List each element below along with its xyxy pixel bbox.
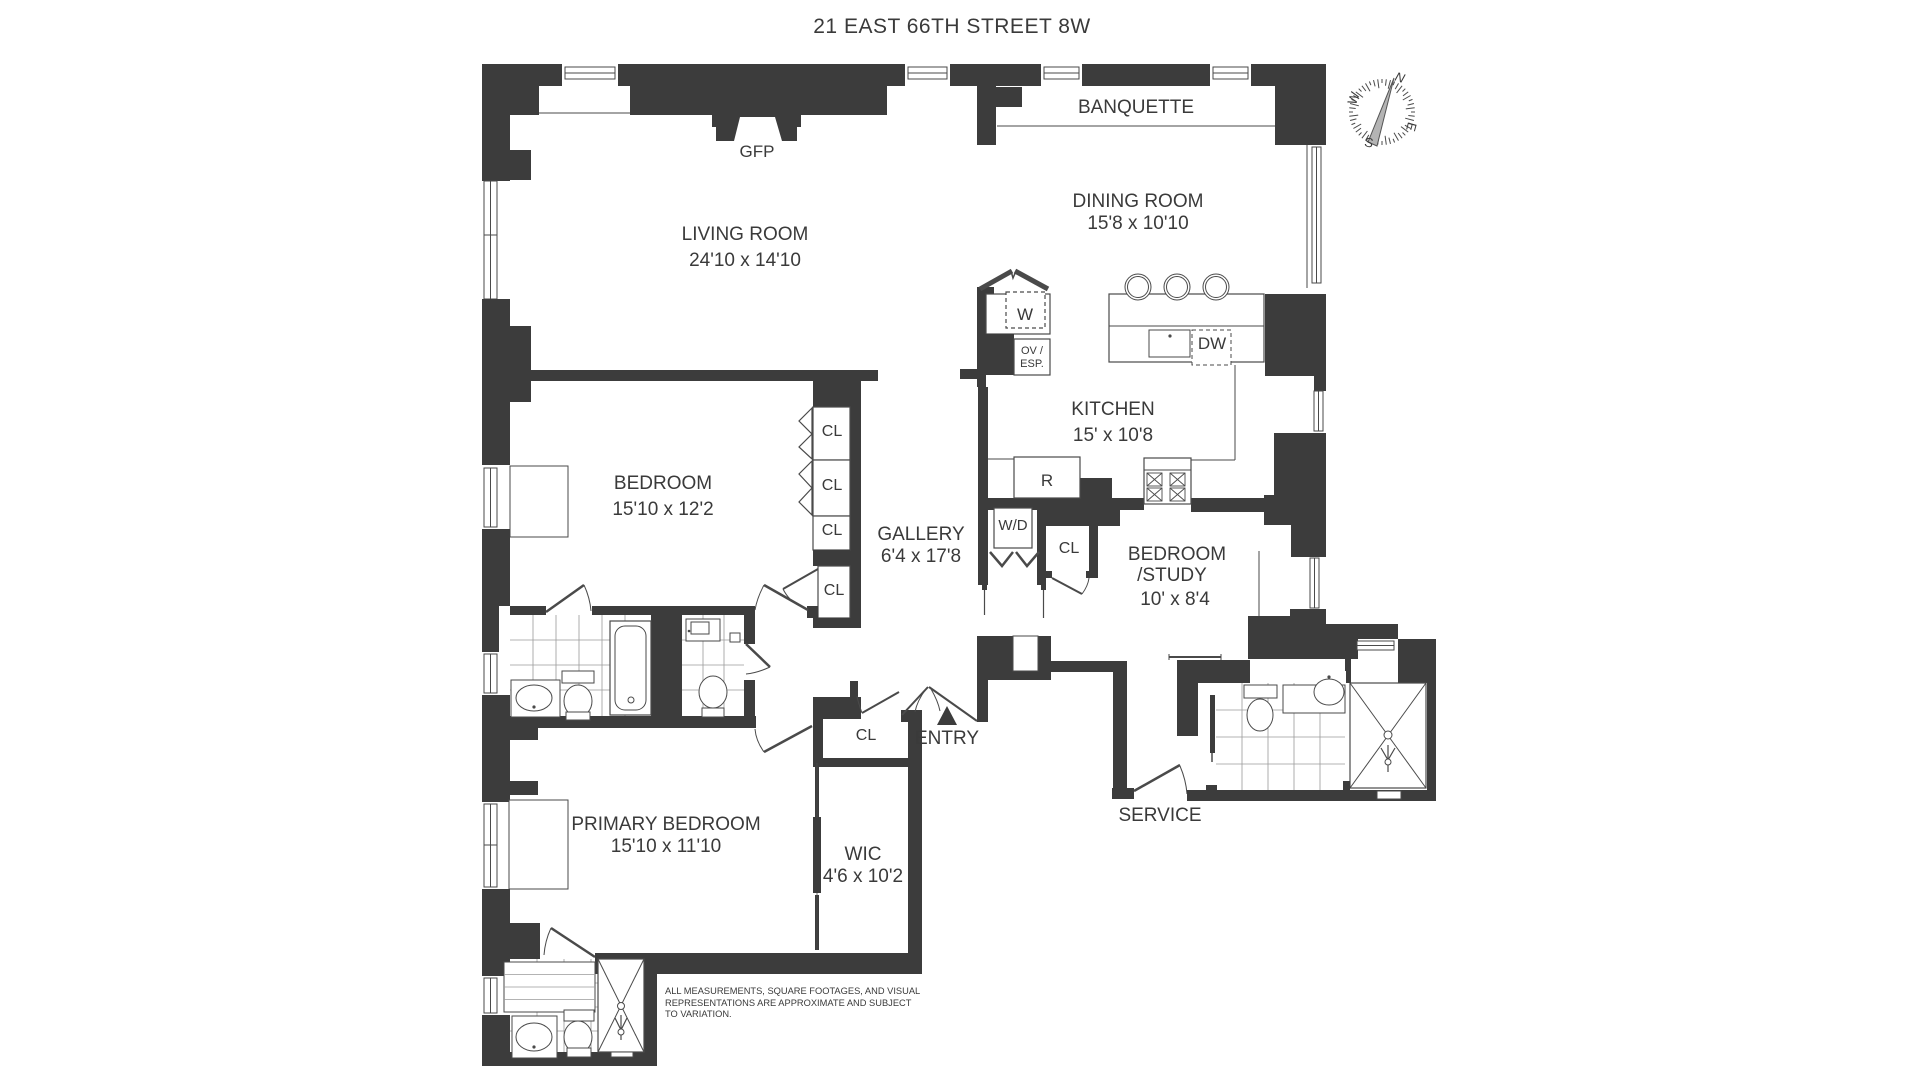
svg-text:6'4 x 17'8: 6'4 x 17'8 (881, 546, 961, 567)
svg-text:GALLERY: GALLERY (877, 524, 965, 545)
svg-text:CL: CL (824, 582, 845, 599)
svg-text:15'10 x 11'10: 15'10 x 11'10 (611, 836, 721, 857)
svg-text:CL: CL (822, 522, 843, 539)
svg-text:15'10 x 12'2: 15'10 x 12'2 (612, 499, 713, 520)
svg-text:ESP.: ESP. (1020, 358, 1044, 370)
svg-text:BEDROOM: BEDROOM (1128, 544, 1226, 565)
svg-text:WIC: WIC (845, 844, 882, 865)
svg-text:DINING ROOM: DINING ROOM (1073, 191, 1204, 212)
svg-text:10' x 8'4: 10' x 8'4 (1140, 589, 1210, 610)
svg-text:24'10 x 14'10: 24'10 x 14'10 (689, 250, 801, 271)
svg-text:CL: CL (856, 727, 877, 744)
svg-text:ENTRY: ENTRY (915, 728, 979, 749)
svg-text:21 EAST 66TH STREET 8W: 21 EAST 66TH STREET 8W (813, 15, 1090, 38)
svg-text:KITCHEN: KITCHEN (1071, 399, 1154, 420)
svg-text:CL: CL (1059, 540, 1080, 557)
svg-text:PRIMARY BEDROOM: PRIMARY BEDROOM (571, 814, 760, 835)
svg-text:TO VARIATION.: TO VARIATION. (665, 1009, 732, 1019)
svg-text:W/D: W/D (998, 517, 1027, 534)
svg-text:ALL MEASUREMENTS, SQUARE FOOTA: ALL MEASUREMENTS, SQUARE FOOTAGES, AND V… (665, 986, 920, 996)
svg-text:SERVICE: SERVICE (1118, 805, 1201, 826)
svg-text:15'8 x 10'10: 15'8 x 10'10 (1087, 213, 1188, 234)
svg-text:15' x 10'8: 15' x 10'8 (1073, 425, 1153, 446)
svg-text:LIVING ROOM: LIVING ROOM (682, 224, 809, 245)
svg-text:W: W (1017, 305, 1033, 324)
svg-text:OV /: OV / (1021, 345, 1044, 357)
svg-text:GFP: GFP (740, 142, 775, 161)
svg-text:BEDROOM: BEDROOM (614, 473, 712, 494)
svg-text:DW: DW (1198, 334, 1226, 353)
svg-text:4'6 x 10'2: 4'6 x 10'2 (823, 866, 903, 887)
svg-text:REPRESENTATIONS ARE APPROXIMAT: REPRESENTATIONS ARE APPROXIMATE AND SUBJ… (665, 998, 912, 1008)
svg-text:/STUDY: /STUDY (1137, 565, 1207, 586)
svg-text:R: R (1041, 471, 1053, 490)
svg-text:CL: CL (822, 477, 843, 494)
svg-text:CL: CL (822, 423, 843, 440)
svg-text:BANQUETTE: BANQUETTE (1078, 97, 1194, 118)
